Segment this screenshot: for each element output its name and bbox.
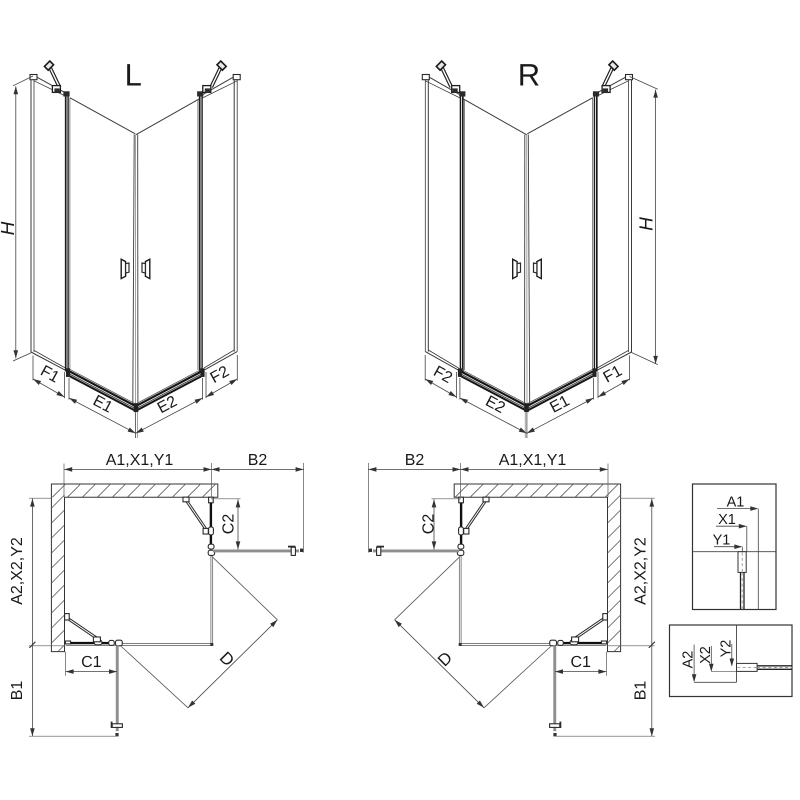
svg-text:C1: C1 (570, 654, 591, 671)
svg-text:R: R (518, 58, 540, 93)
svg-text:L: L (125, 58, 142, 93)
svg-text:Y2: Y2 (718, 640, 734, 658)
svg-text:A1: A1 (727, 495, 745, 511)
svg-text:A2,X2,Y2: A2,X2,Y2 (9, 537, 26, 605)
svg-text:C2: C2 (421, 514, 438, 535)
svg-text:B1: B1 (9, 681, 26, 701)
svg-text:C2: C2 (221, 514, 238, 535)
svg-text:B2: B2 (405, 452, 425, 469)
svg-text:B1: B1 (633, 681, 650, 701)
svg-text:X1: X1 (718, 512, 736, 528)
svg-text:A1,X1,Y1: A1,X1,Y1 (106, 452, 174, 469)
svg-text:H: H (0, 221, 19, 235)
svg-text:A2,X2,Y2: A2,X2,Y2 (633, 537, 650, 605)
svg-text:Y1: Y1 (713, 532, 731, 548)
svg-text:X2: X2 (698, 646, 714, 664)
svg-text:A2: A2 (681, 651, 697, 669)
svg-text:B2: B2 (248, 452, 268, 469)
svg-text:H: H (637, 217, 658, 231)
svg-text:C1: C1 (81, 654, 102, 671)
svg-text:A1,X1,Y1: A1,X1,Y1 (499, 452, 567, 469)
